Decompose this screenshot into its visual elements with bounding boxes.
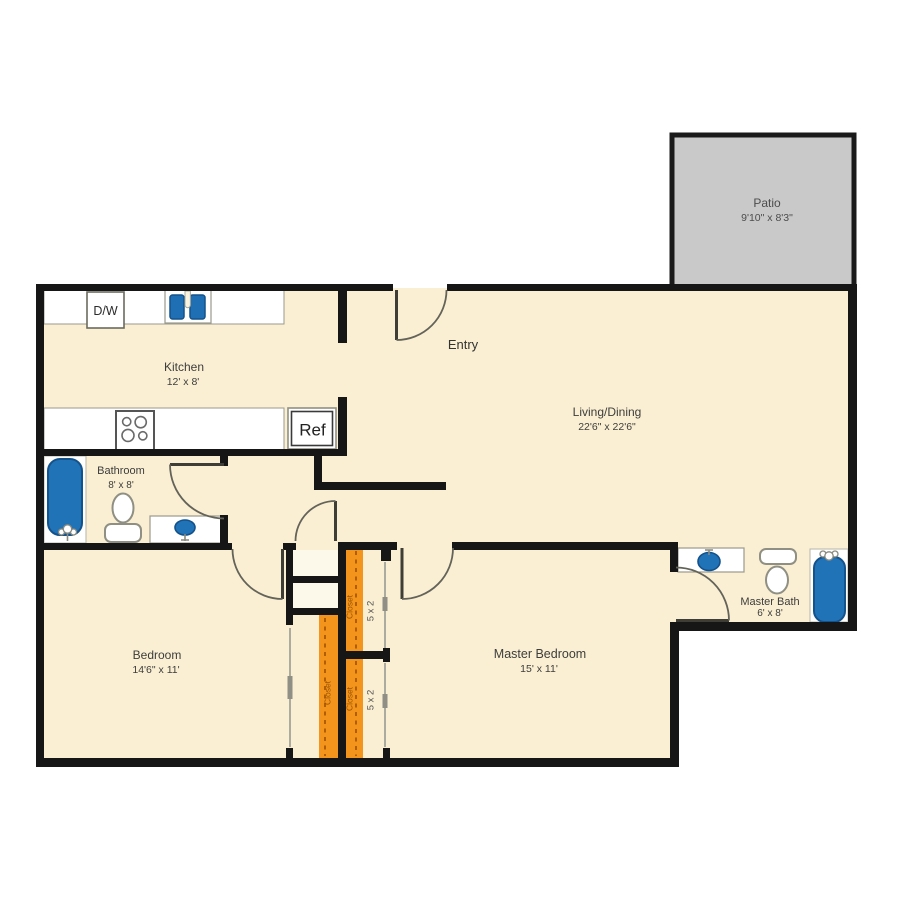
svg-text:9'10" x 8'3": 9'10" x 8'3" bbox=[741, 212, 793, 224]
svg-text:Master Bedroom: Master Bedroom bbox=[494, 647, 586, 661]
svg-text:Master Bath: Master Bath bbox=[740, 596, 799, 608]
svg-text:15' x 11': 15' x 11' bbox=[520, 663, 558, 675]
svg-text:D/W: D/W bbox=[93, 304, 118, 318]
svg-text:5 x 2: 5 x 2 bbox=[366, 601, 377, 622]
svg-text:5 x 2: 5 x 2 bbox=[366, 690, 377, 711]
svg-text:8' x 8': 8' x 8' bbox=[108, 480, 134, 491]
svg-text:12' x 8': 12' x 8' bbox=[167, 376, 200, 388]
svg-text:Bedroom: Bedroom bbox=[133, 648, 182, 662]
svg-text:Patio: Patio bbox=[753, 196, 781, 210]
svg-text:Kitchen: Kitchen bbox=[164, 360, 204, 374]
svg-text:Living/Dining: Living/Dining bbox=[573, 405, 642, 419]
svg-text:Entry: Entry bbox=[448, 337, 479, 352]
svg-text:Closet: Closet bbox=[323, 680, 333, 705]
svg-text:14'6" x 11': 14'6" x 11' bbox=[132, 664, 179, 676]
svg-text:22'6" x 22'6": 22'6" x 22'6" bbox=[578, 421, 636, 433]
svg-text:6' x 8': 6' x 8' bbox=[757, 608, 783, 619]
svg-text:Ref: Ref bbox=[299, 421, 326, 440]
svg-text:Bathroom: Bathroom bbox=[97, 465, 145, 477]
